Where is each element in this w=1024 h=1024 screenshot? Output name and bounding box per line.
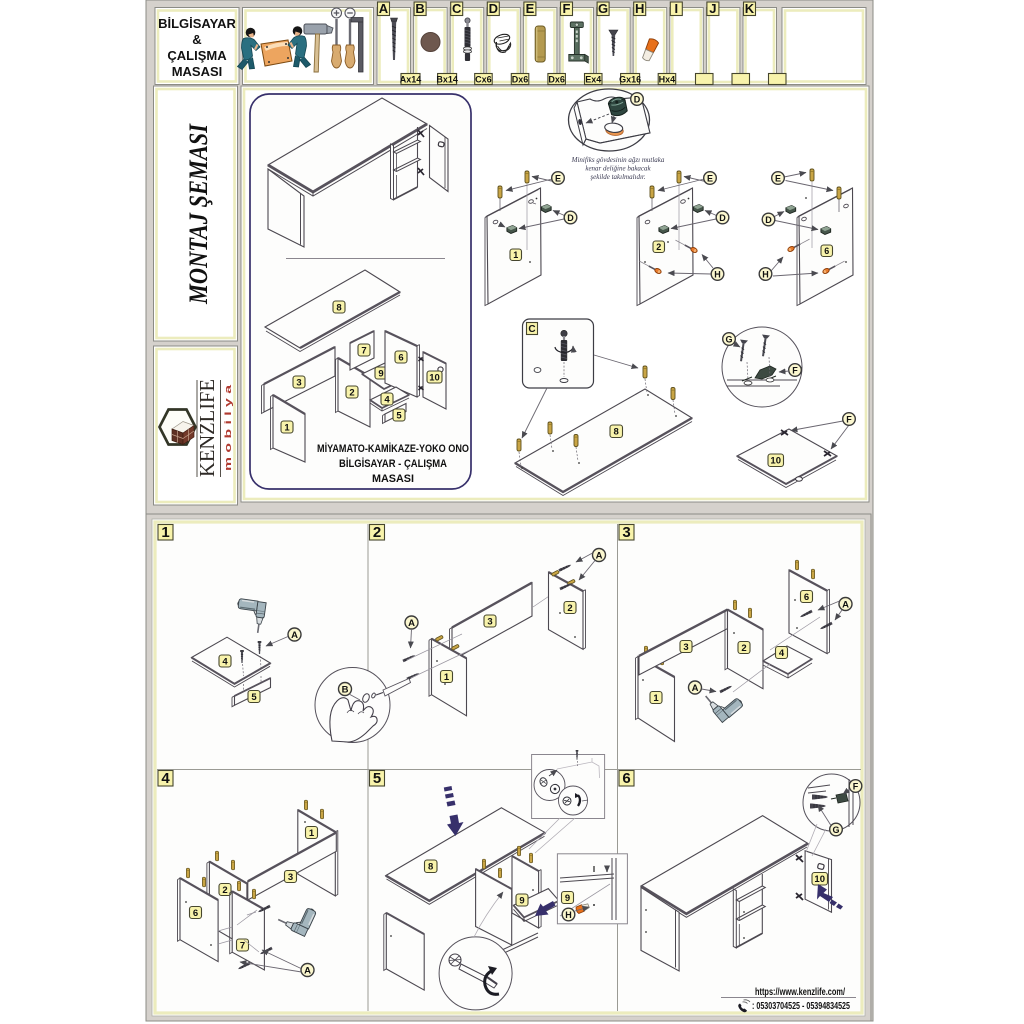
svg-text:A: A [842, 600, 849, 611]
svg-text:H: H [635, 1, 644, 16]
svg-text:Dx6: Dx6 [512, 75, 529, 85]
svg-text:A: A [692, 683, 699, 694]
svg-text:KENZLIFE: KENZLIFE [195, 379, 219, 477]
svg-text:Ex4: Ex4 [585, 75, 601, 85]
svg-text:1: 1 [309, 828, 315, 839]
svg-text:4: 4 [161, 770, 170, 787]
svg-text:3: 3 [288, 872, 293, 883]
svg-text:3: 3 [487, 617, 492, 628]
svg-text:1: 1 [653, 693, 659, 704]
svg-text:10: 10 [770, 456, 781, 467]
svg-text:&: & [192, 32, 201, 47]
svg-text:B: B [415, 1, 424, 16]
svg-text:Bx14: Bx14 [436, 75, 458, 85]
svg-text:2: 2 [741, 643, 746, 654]
svg-text:8: 8 [614, 427, 619, 438]
svg-text:1: 1 [161, 524, 169, 541]
svg-text:Gx16: Gx16 [619, 75, 641, 85]
svg-text:7: 7 [361, 346, 366, 357]
svg-text:m o b i l y a: m o b i l y a [223, 384, 234, 471]
svg-text:4: 4 [222, 657, 228, 668]
svg-text:A: A [291, 630, 298, 641]
svg-text:2: 2 [373, 524, 381, 541]
svg-text:Cx6: Cx6 [475, 75, 492, 85]
svg-text:1: 1 [284, 423, 290, 434]
svg-text:H: H [565, 910, 572, 920]
svg-text:6: 6 [804, 592, 809, 603]
svg-text:3: 3 [683, 642, 688, 653]
svg-text:kenar deliğine bakacak: kenar deliğine bakacak [585, 165, 651, 173]
svg-text:F: F [853, 782, 859, 792]
svg-text:1: 1 [444, 672, 450, 683]
svg-text:E: E [707, 174, 713, 184]
svg-text:A: A [304, 966, 311, 977]
svg-text:H: H [714, 270, 721, 280]
svg-text:şekilde takılmalıdır.: şekilde takılmalıdır. [590, 173, 645, 181]
svg-text:2: 2 [567, 603, 572, 614]
svg-text:10: 10 [429, 373, 440, 384]
svg-text:J: J [709, 1, 716, 16]
svg-text:BİLGİSAYAR: BİLGİSAYAR [158, 16, 236, 31]
svg-text:4: 4 [779, 648, 785, 659]
svg-text:K: K [745, 1, 755, 16]
svg-text:D: D [489, 1, 498, 16]
svg-text:C: C [452, 1, 462, 16]
svg-text:6: 6 [824, 246, 829, 256]
svg-text:2: 2 [222, 885, 227, 896]
svg-text:9: 9 [378, 369, 383, 380]
svg-text:MASASI: MASASI [172, 64, 223, 79]
svg-text:Hx4: Hx4 [659, 75, 676, 85]
svg-text:Minifiks gövdesinin ağzı mutla: Minifiks gövdesinin ağzı mutlaka [571, 156, 665, 164]
svg-text:MONTAJ ŞEMASI: MONTAJ ŞEMASI [184, 123, 213, 305]
svg-text:G: G [832, 825, 839, 835]
svg-text:Ax14: Ax14 [400, 75, 422, 85]
svg-text:E: E [775, 174, 781, 184]
svg-text:D: D [634, 95, 641, 105]
svg-text:A: A [379, 1, 389, 16]
svg-text:4: 4 [384, 395, 390, 406]
svg-text:E: E [555, 174, 561, 184]
svg-text:MİYAMATO-KAMİKAZE-YOKO ONO: MİYAMATO-KAMİKAZE-YOKO ONO [317, 442, 469, 455]
svg-text:7: 7 [240, 941, 245, 952]
svg-text:8: 8 [336, 303, 341, 314]
svg-text:D: D [765, 215, 772, 225]
svg-text:3: 3 [296, 378, 301, 389]
svg-text:C: C [528, 324, 535, 335]
svg-text:6: 6 [398, 353, 403, 364]
svg-text:G: G [725, 335, 732, 345]
svg-text:A: A [596, 551, 603, 562]
svg-text:D: D [567, 213, 574, 223]
svg-text:B: B [342, 685, 349, 696]
svg-text:ÇALIŞMA: ÇALIŞMA [167, 48, 227, 63]
svg-text:D: D [719, 213, 726, 223]
svg-text:6: 6 [622, 770, 630, 787]
svg-text:10: 10 [814, 874, 825, 885]
svg-text:2: 2 [656, 242, 661, 252]
svg-text:MASASI: MASASI [372, 473, 414, 485]
svg-text:BİLGİSAYAR - ÇALIŞMA: BİLGİSAYAR - ÇALIŞMA [339, 457, 447, 470]
svg-text:https://www.kenzlife.com/: https://www.kenzlife.com/ [755, 987, 845, 998]
svg-text:5: 5 [373, 770, 381, 787]
svg-text:8: 8 [428, 862, 433, 873]
svg-text:F: F [792, 366, 798, 376]
svg-text:A: A [408, 618, 415, 629]
svg-text:9: 9 [565, 893, 570, 904]
svg-text:H: H [762, 270, 769, 280]
svg-text:Dx6: Dx6 [548, 75, 565, 85]
svg-text:F: F [563, 1, 571, 16]
svg-text:6: 6 [193, 908, 198, 919]
svg-text:1: 1 [513, 250, 518, 260]
svg-text:5: 5 [396, 411, 402, 422]
svg-text:9: 9 [519, 896, 524, 907]
svg-text:3: 3 [622, 524, 630, 541]
svg-text:G: G [598, 1, 608, 16]
svg-text:E: E [526, 1, 535, 16]
svg-text:F: F [846, 415, 852, 425]
svg-text:: 05303704525 - 05394834525: : 05303704525 - 05394834525 [752, 1001, 850, 1012]
svg-text:I: I [674, 1, 678, 16]
svg-text:2: 2 [349, 388, 354, 399]
svg-text:5: 5 [251, 692, 257, 703]
